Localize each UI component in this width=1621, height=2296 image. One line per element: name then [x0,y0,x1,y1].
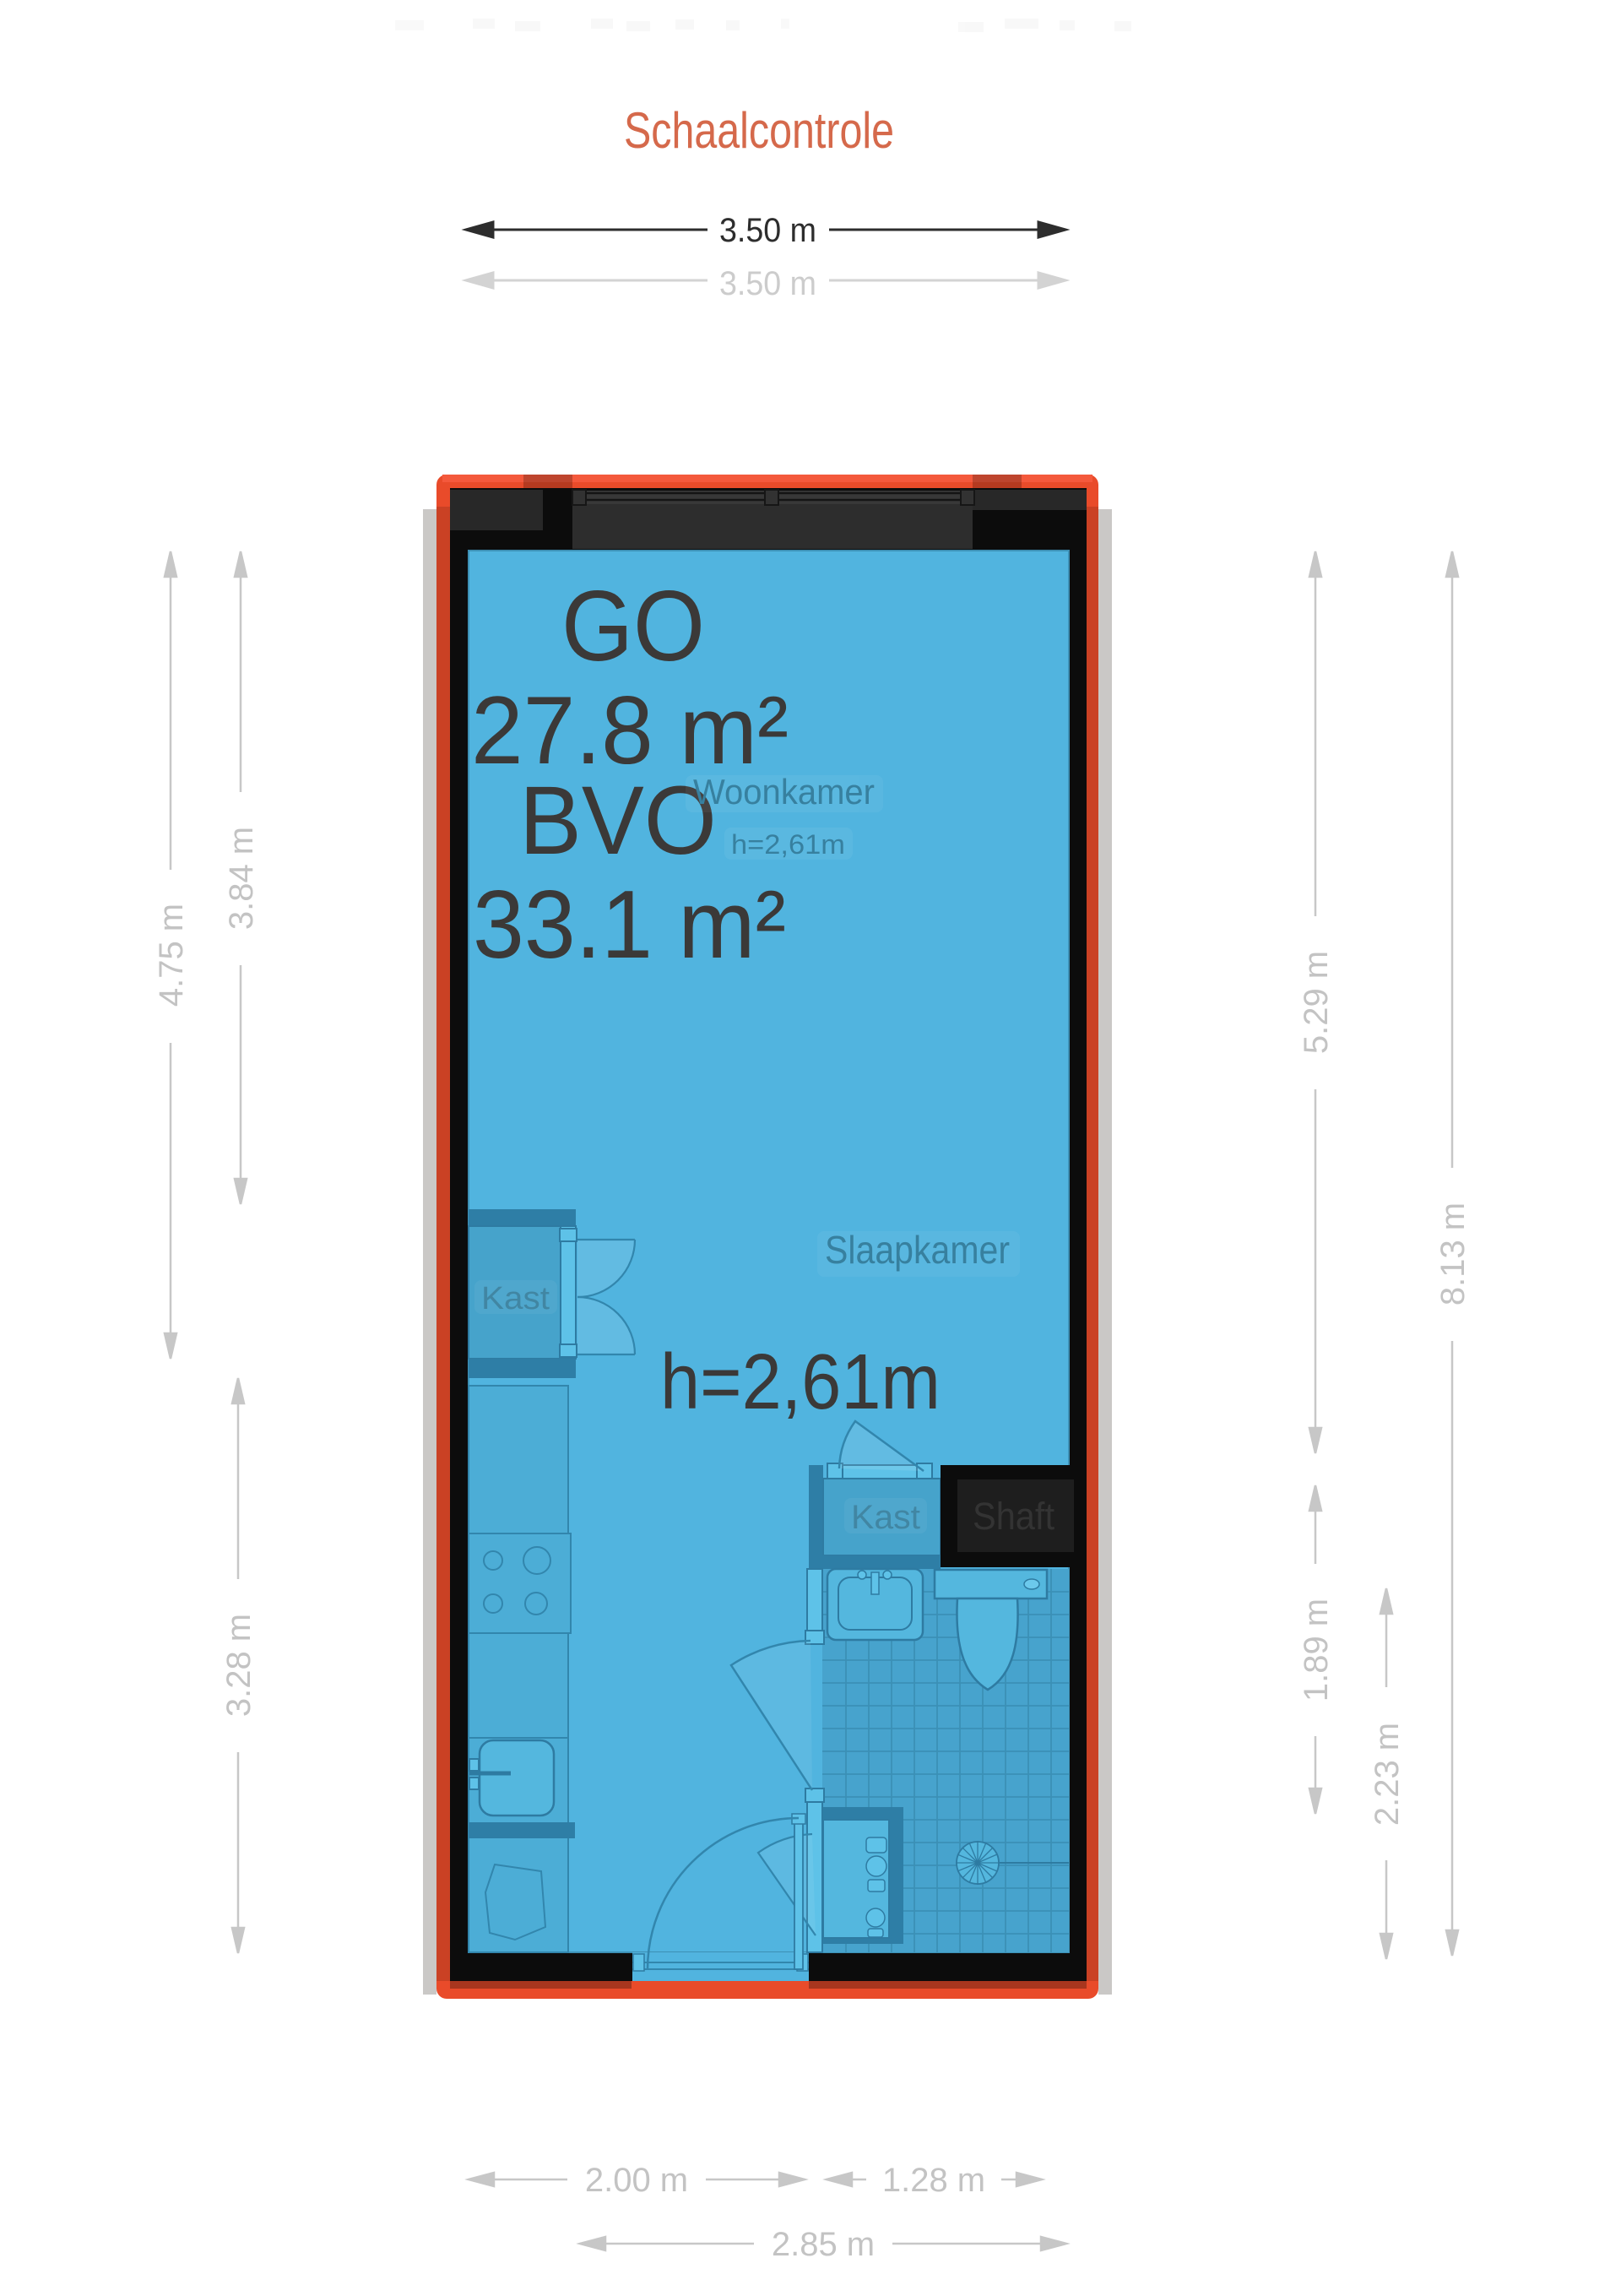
svg-text:3.28 m: 3.28 m [220,1614,258,1717]
svg-text:Schaalcontrole: Schaalcontrole [624,102,894,159]
svg-text:2.85 m: 2.85 m [772,2226,875,2263]
svg-text:4.75 m: 4.75 m [153,904,190,1007]
svg-text:GO: GO [561,570,705,682]
svg-text:Shaft: Shaft [973,1495,1054,1538]
svg-text:h=2,61m: h=2,61m [660,1338,941,1425]
svg-text:2.00 m: 2.00 m [585,2162,688,2199]
svg-text:h=2,61m: h=2,61m [731,829,845,860]
svg-text:2.23 m: 2.23 m [1369,1723,1406,1826]
svg-text:3.84 m: 3.84 m [223,827,260,930]
svg-text:1.89 m: 1.89 m [1298,1599,1335,1702]
svg-text:8.13 m: 8.13 m [1434,1202,1472,1305]
svg-text:33.1 m²: 33.1 m² [473,871,786,979]
svg-text:3.50 m: 3.50 m [719,265,816,302]
svg-text:3.50 m: 3.50 m [719,212,816,249]
svg-text:1.28 m: 1.28 m [882,2162,985,2199]
svg-text:Woonkamer: Woonkamer [693,772,875,811]
svg-text:5.29 m: 5.29 m [1298,951,1335,1054]
svg-text:Slaapkamer: Slaapkamer [825,1228,1010,1272]
